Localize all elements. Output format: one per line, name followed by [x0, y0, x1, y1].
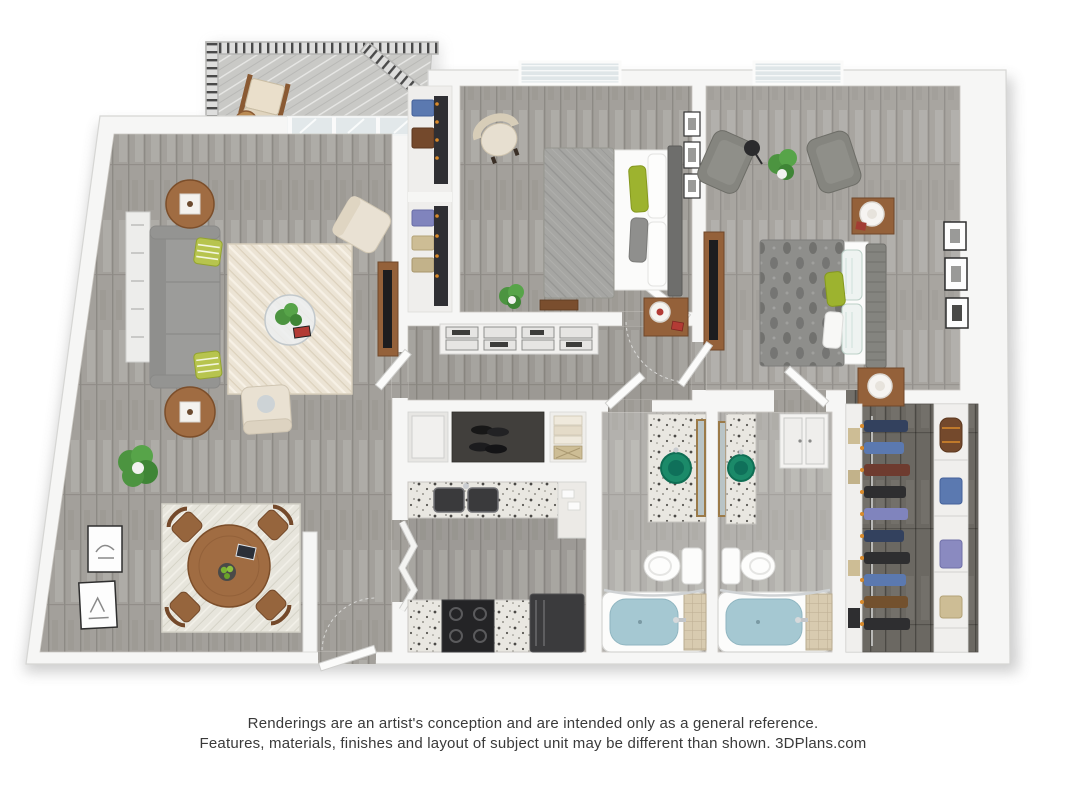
- headboard: [668, 146, 682, 296]
- bedroom-1-closet: [408, 86, 452, 312]
- wall-art: [944, 222, 968, 328]
- tv: [709, 240, 718, 340]
- bath-water: [726, 599, 802, 645]
- floor-plan-canvas: [0, 0, 1066, 800]
- closet-shelf-left: [846, 404, 862, 652]
- tub-tile-surround: [806, 594, 832, 650]
- gray-pillow: [629, 218, 648, 263]
- tv: [383, 270, 392, 348]
- folded-clothes: [412, 100, 434, 116]
- balcony-railing-top: [206, 42, 438, 54]
- bed: [544, 146, 682, 298]
- tub-tile-surround: [684, 594, 706, 650]
- pillow: [648, 222, 666, 286]
- kitchen-sink: [434, 488, 464, 512]
- hanging-clothes: [434, 96, 448, 184]
- wall-art-panel: [126, 212, 150, 362]
- duffel-bag: [940, 418, 962, 452]
- bathtub: [718, 590, 832, 652]
- disclaimer: Renderings are an artist's conception an…: [0, 714, 1066, 754]
- linen-closet: [550, 412, 586, 462]
- nightstand: [852, 198, 894, 234]
- refrigerator: [530, 594, 584, 652]
- dining-table: [188, 525, 270, 607]
- tv-console: [378, 262, 398, 356]
- side-table: [166, 180, 214, 228]
- range: [442, 600, 494, 652]
- hanging-clothes: [434, 206, 448, 306]
- mirror: [719, 422, 726, 516]
- coffee-table: [265, 295, 315, 345]
- window: [754, 62, 842, 84]
- wall-art: [684, 112, 700, 198]
- duvet: [544, 148, 614, 298]
- nightstand: [858, 368, 904, 406]
- green-pillow: [628, 165, 648, 212]
- foot-bench: [540, 300, 578, 310]
- disclaimer-line-1: Renderings are an artist's conception an…: [0, 714, 1066, 734]
- linen-cabinet: [780, 414, 828, 468]
- bed: [760, 240, 886, 368]
- bath-water: [610, 599, 678, 645]
- tufted-headboard: [866, 244, 886, 368]
- entry-partition-wall: [303, 532, 317, 652]
- tv-console: [704, 232, 724, 350]
- kitchen-counter-bottom: [494, 600, 530, 652]
- throw-pillow: [193, 237, 222, 266]
- faucet: [738, 449, 743, 454]
- floor-plan-rendering: Renderings are an artist's conception an…: [0, 0, 1066, 800]
- hall-closets: [408, 412, 586, 462]
- disclaimer-line-2: Features, materials, finishes and layout…: [0, 734, 1066, 754]
- balcony-sliding-glass-door: [288, 117, 426, 135]
- mirror: [697, 420, 705, 516]
- closet-shelf-right: [934, 404, 968, 652]
- window: [520, 62, 620, 84]
- bathtub: [602, 590, 706, 652]
- green-pillow: [824, 271, 845, 307]
- shoe-closet: [452, 412, 544, 462]
- side-table: [165, 387, 215, 437]
- throw-pillow: [193, 351, 222, 380]
- kitchen-sink: [468, 488, 498, 512]
- pillow: [648, 154, 666, 218]
- white-pillow: [822, 311, 843, 348]
- kitchen-counter-bottom: [408, 600, 442, 652]
- sofa: [150, 226, 223, 388]
- accent-armchair: [241, 384, 292, 434]
- kitchen-faucet: [463, 483, 469, 489]
- hall-dresser: [440, 324, 598, 354]
- faucet: [673, 447, 678, 452]
- nightstand: [644, 298, 688, 336]
